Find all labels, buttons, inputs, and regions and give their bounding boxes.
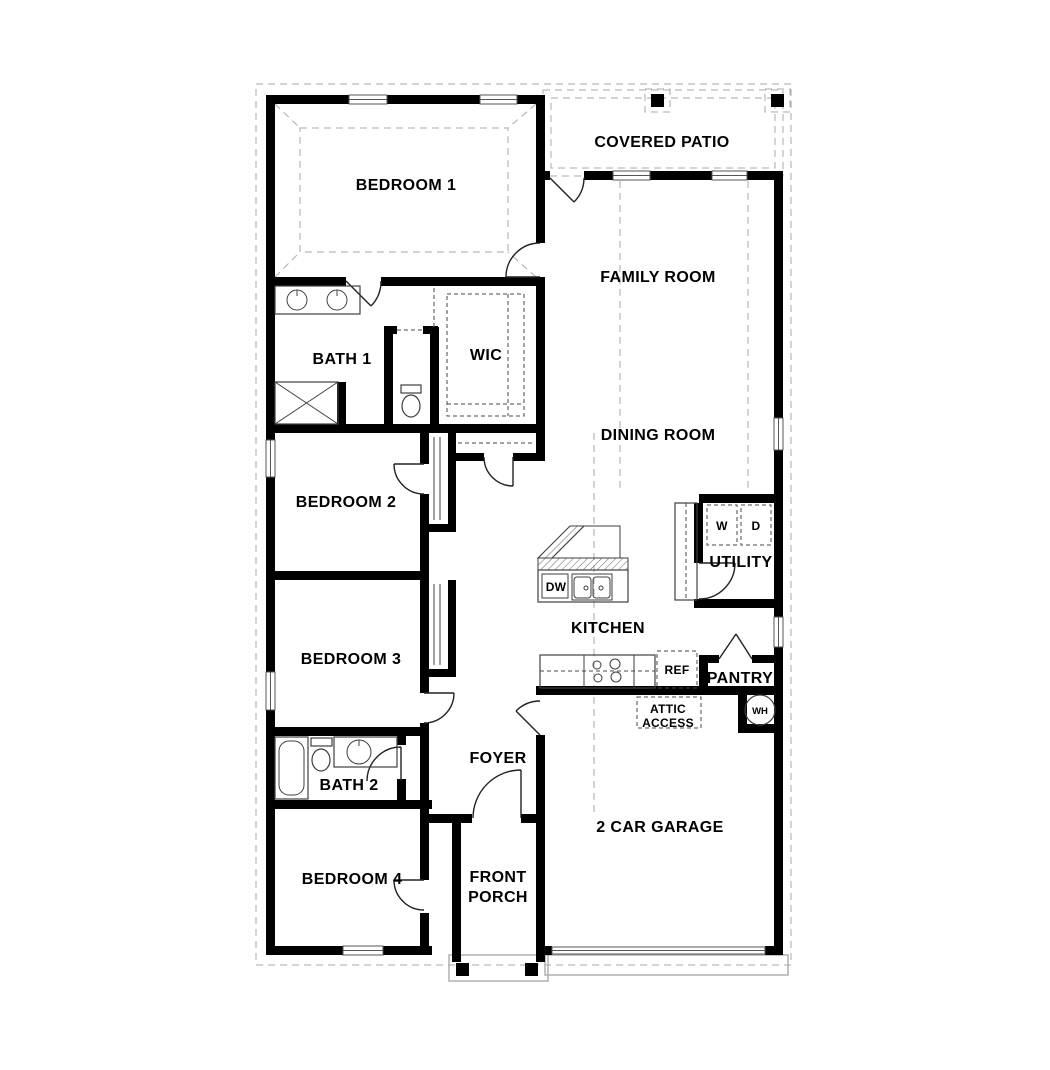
bath2-door xyxy=(367,747,401,781)
room-label-pantry: PANTRY xyxy=(707,670,773,687)
wall xyxy=(584,171,613,180)
garage-door xyxy=(552,947,765,954)
bedroom3-door xyxy=(424,693,454,723)
floor-plan-page: BEDROOM 1 COVERED PATIO FAMILY ROOM BATH… xyxy=(0,0,1050,1070)
window xyxy=(343,946,383,955)
room-label-bath1: BATH 1 xyxy=(313,351,372,368)
wall xyxy=(694,503,703,563)
kitchen-fixtures xyxy=(538,503,697,688)
wall xyxy=(699,655,719,663)
wall xyxy=(381,277,545,286)
burner-icon xyxy=(610,659,620,669)
sink-bowl-icon xyxy=(574,577,591,598)
linen-closet-door xyxy=(484,457,513,486)
wall xyxy=(774,450,783,617)
window xyxy=(774,617,783,647)
kitchen-sink xyxy=(572,574,612,600)
bathtub-inner xyxy=(279,741,304,795)
wall xyxy=(694,599,783,608)
room-label-kitchen: KITCHEN xyxy=(571,620,645,637)
toilet-icon xyxy=(402,395,420,417)
label-water-heater: WH xyxy=(752,706,768,717)
wall xyxy=(420,809,429,880)
room-label-bedroom3: BEDROOM 3 xyxy=(301,651,402,668)
room-label-wic: WIC xyxy=(470,347,502,364)
wall xyxy=(448,580,456,669)
tray-corner-line xyxy=(275,252,300,277)
wall xyxy=(266,95,349,104)
front-door xyxy=(473,770,521,818)
wall xyxy=(454,453,484,461)
label-dryer: D xyxy=(752,519,761,533)
wall xyxy=(420,494,429,693)
wall xyxy=(774,171,783,418)
wall xyxy=(397,736,406,745)
wall xyxy=(650,171,712,180)
wall xyxy=(536,286,545,461)
wall xyxy=(384,326,397,334)
wall xyxy=(420,913,429,946)
window xyxy=(266,672,275,710)
patio-post-left xyxy=(651,94,664,107)
room-label-front-porch-2: PORCH xyxy=(468,889,528,906)
bath1-door xyxy=(346,281,381,306)
wall xyxy=(774,647,783,946)
wall xyxy=(266,800,432,809)
patio-post-right xyxy=(771,94,784,107)
label-dishwasher: DW xyxy=(546,580,567,594)
wall xyxy=(384,334,393,424)
wall xyxy=(383,946,432,955)
window xyxy=(712,171,747,180)
label-washer: W xyxy=(716,519,728,533)
room-label-bedroom2: BEDROOM 2 xyxy=(296,494,397,511)
wall xyxy=(266,710,275,955)
window xyxy=(480,95,517,104)
wall xyxy=(428,814,472,823)
label-attic-access-2: ACCESS xyxy=(642,716,694,730)
toilet-icon xyxy=(312,749,330,771)
tray-corner-line xyxy=(275,104,300,128)
label-attic-access-1: ATTIC xyxy=(650,702,686,716)
wall xyxy=(266,95,275,440)
window xyxy=(774,418,783,450)
wall xyxy=(738,695,747,724)
wall xyxy=(699,494,783,503)
wall xyxy=(266,571,428,580)
wall xyxy=(387,95,480,104)
window xyxy=(613,171,650,180)
covered-patio-outline xyxy=(543,89,790,176)
label-refrigerator: REF xyxy=(665,663,690,677)
walls xyxy=(266,95,783,976)
room-label-covered-patio: COVERED PATIO xyxy=(594,134,729,151)
wall xyxy=(266,277,346,286)
patio-inner-line xyxy=(551,98,775,168)
wall xyxy=(448,433,456,524)
porch-post-right xyxy=(525,963,538,976)
island-counter-hatch xyxy=(538,558,628,570)
wall xyxy=(266,424,545,433)
tray-corner-line xyxy=(508,252,536,277)
wall xyxy=(397,779,406,800)
sink-bowl-icon xyxy=(593,577,610,598)
tray-corner-line xyxy=(508,104,536,128)
wall xyxy=(765,946,783,955)
room-label-garage: 2 CAR GARAGE xyxy=(596,819,723,836)
wall xyxy=(452,823,461,962)
room-label-dining-room: DINING ROOM xyxy=(601,427,716,444)
floor-plan-drawing: BEDROOM 1 COVERED PATIO FAMILY ROOM BATH… xyxy=(0,0,1050,1070)
toilet-tank-icon xyxy=(401,385,421,393)
room-label-foyer: FOYER xyxy=(469,750,526,767)
toilet-tank-icon xyxy=(311,738,332,746)
bedroom1-door xyxy=(506,243,540,277)
island-bar-hatch xyxy=(538,526,584,558)
room-label-utility: UTILITY xyxy=(709,554,772,571)
burner-icon xyxy=(611,672,621,682)
room-label-bedroom4: BEDROOM 4 xyxy=(302,871,403,888)
patio-door xyxy=(550,178,584,202)
room-label-bath2: BATH 2 xyxy=(320,777,379,794)
window xyxy=(349,95,387,104)
wall xyxy=(536,735,545,962)
site-outline xyxy=(256,84,791,981)
bedroom2-door xyxy=(394,464,424,494)
wall xyxy=(536,686,783,695)
room-label-bedroom1: BEDROOM 1 xyxy=(356,177,457,194)
wall xyxy=(266,727,428,736)
room-label-front-porch-1: FRONT xyxy=(469,869,526,886)
pantry-door xyxy=(719,634,752,659)
sink-drain-icon xyxy=(599,586,603,590)
wall xyxy=(420,433,429,464)
wall xyxy=(430,327,439,424)
wall xyxy=(266,477,275,672)
burner-icon xyxy=(594,674,602,682)
room-label-family-room: FAMILY ROOM xyxy=(600,269,716,286)
window xyxy=(266,440,275,477)
garage-entry-door xyxy=(516,701,540,735)
wall xyxy=(266,946,343,955)
sink-drain-icon xyxy=(584,586,588,590)
wall xyxy=(420,723,429,800)
wall xyxy=(536,95,545,243)
porch-post-left xyxy=(456,963,469,976)
